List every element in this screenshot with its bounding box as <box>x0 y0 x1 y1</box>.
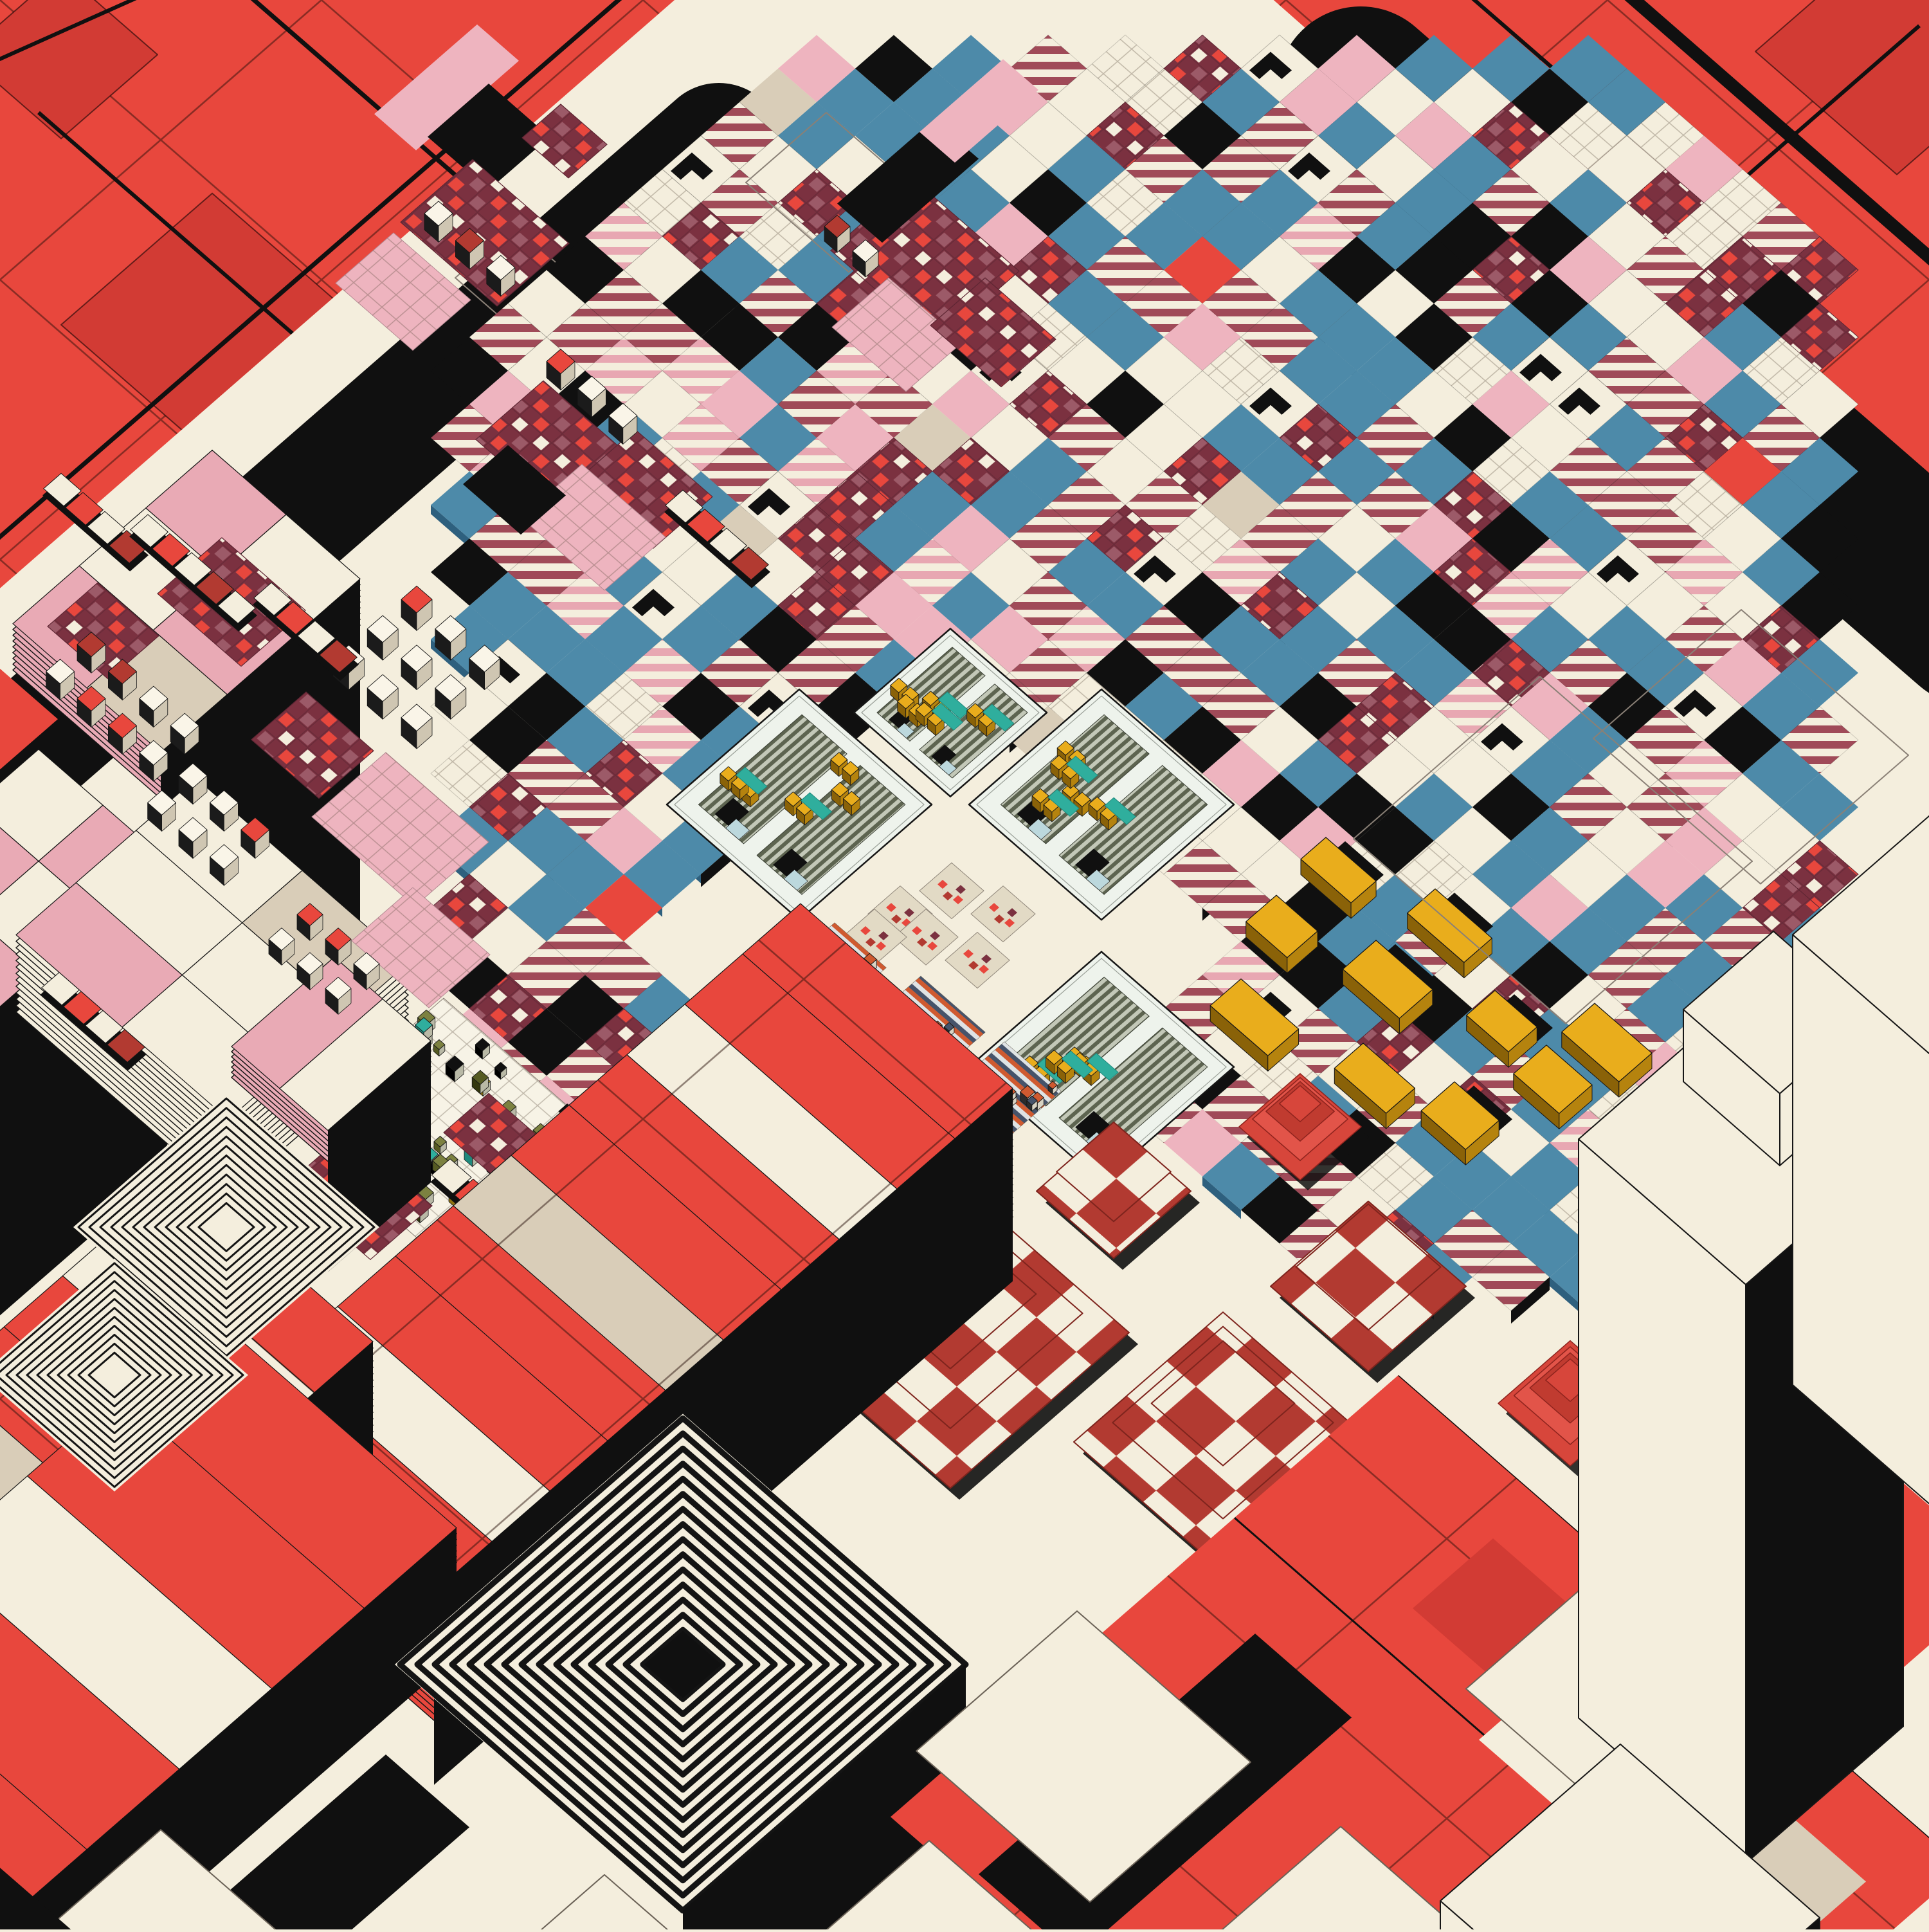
generative-isometric-artwork <box>0 0 1929 1932</box>
artwork-canvas <box>0 0 1929 1929</box>
